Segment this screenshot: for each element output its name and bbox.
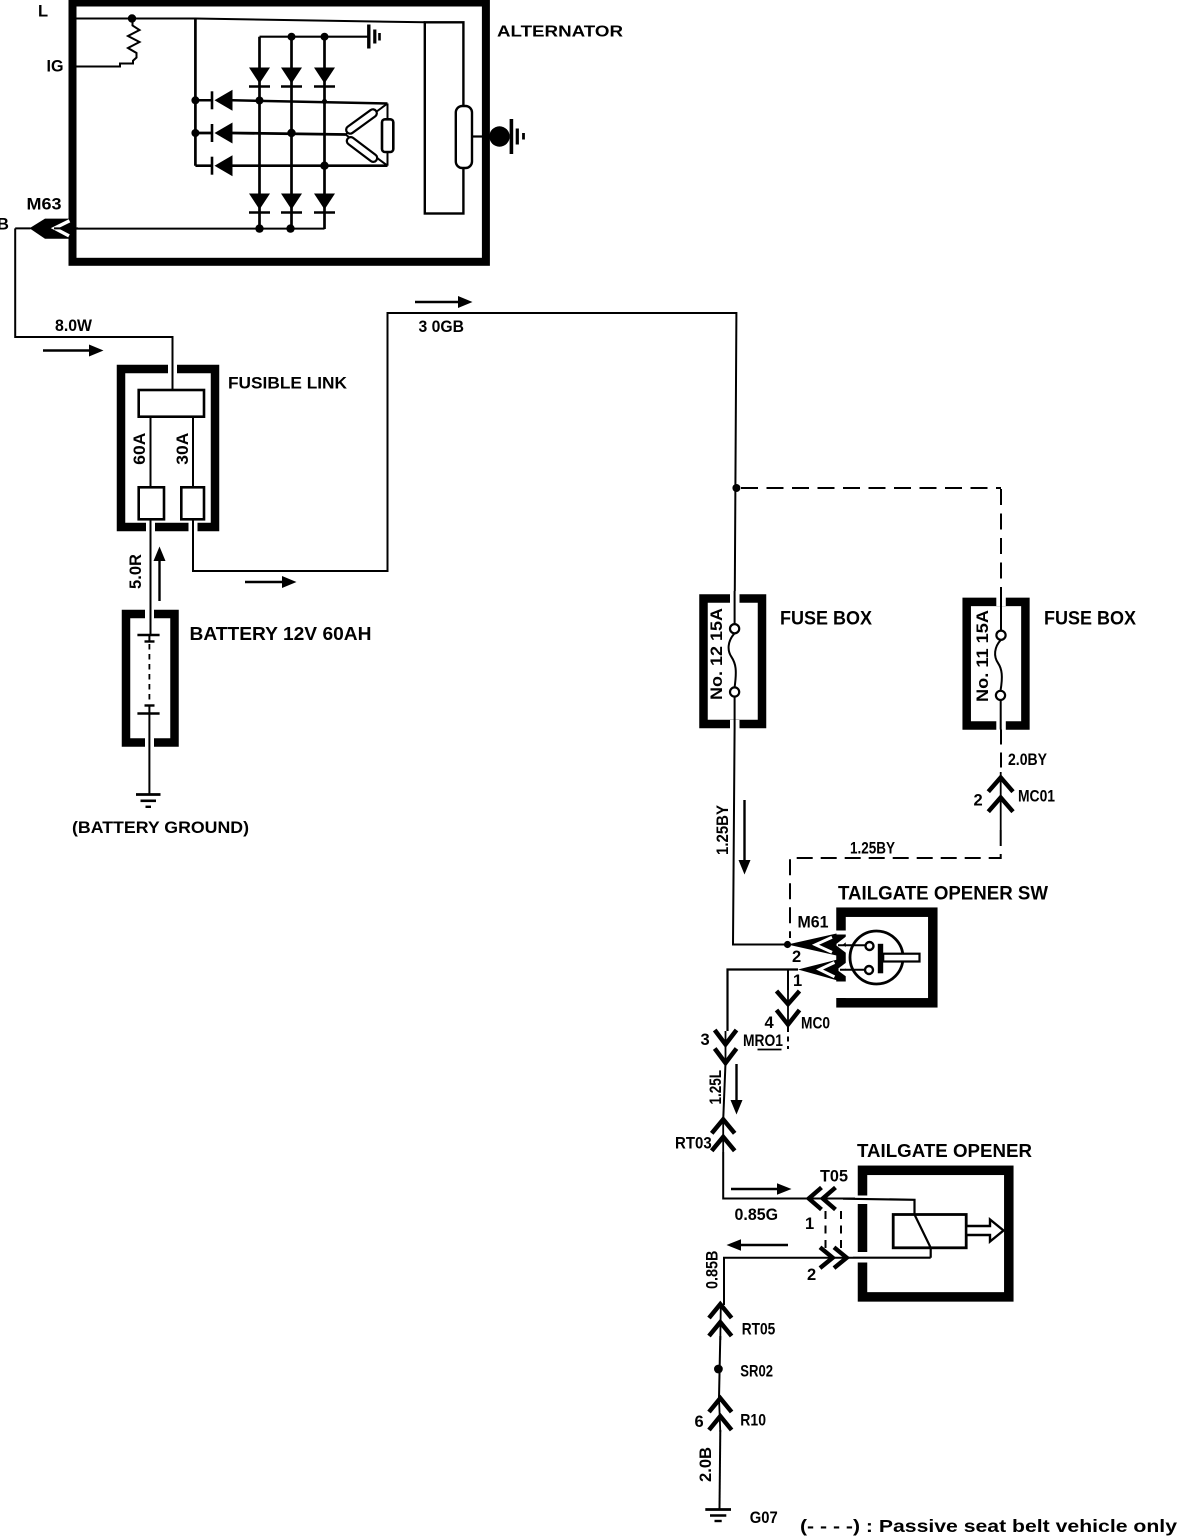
svg-text:(BATTERY GROUND): (BATTERY GROUND) (72, 818, 249, 837)
svg-text:MC0: MC0 (801, 1015, 830, 1033)
svg-text:L: L (38, 3, 48, 21)
svg-text:FUSE BOX: FUSE BOX (780, 609, 872, 630)
svg-text:0.85G: 0.85G (735, 1206, 779, 1224)
svg-text:1: 1 (793, 972, 802, 990)
svg-text:6: 6 (695, 1413, 704, 1431)
svg-text:No. 11 15A: No. 11 15A (974, 610, 992, 702)
svg-text:B: B (0, 216, 9, 234)
svg-text:R10: R10 (740, 1412, 766, 1430)
svg-text:2.0BY: 2.0BY (1008, 751, 1047, 769)
svg-text:G07: G07 (750, 1509, 778, 1527)
svg-text:T05: T05 (820, 1168, 848, 1186)
svg-text:30A: 30A (174, 433, 192, 465)
svg-text:BATTERY 12V 60AH: BATTERY 12V 60AH (190, 624, 372, 644)
svg-text:(- - - -) : Passive seat belt: (- - - -) : Passive seat belt vehicle on… (800, 1516, 1177, 1536)
svg-text:SR02: SR02 (740, 1363, 773, 1381)
svg-text:MC01: MC01 (1018, 788, 1055, 806)
svg-text:IG: IG (47, 58, 64, 76)
svg-text:1: 1 (805, 1215, 814, 1233)
svg-text:2: 2 (792, 948, 801, 966)
svg-text:FUSIBLE LINK: FUSIBLE LINK (228, 375, 347, 393)
svg-text:4: 4 (765, 1014, 775, 1032)
svg-text:0.85B: 0.85B (703, 1250, 721, 1289)
svg-text:60A: 60A (131, 433, 149, 465)
svg-text:RT05: RT05 (742, 1321, 776, 1339)
svg-text:8.0W: 8.0W (55, 317, 92, 335)
svg-text:No. 12 15A: No. 12 15A (708, 608, 726, 700)
svg-text:ALTERNATOR: ALTERNATOR (497, 24, 623, 41)
svg-text:RT03: RT03 (675, 1134, 712, 1152)
svg-text:2: 2 (807, 1266, 816, 1284)
svg-text:3: 3 (701, 1031, 710, 1049)
svg-text:1.25BY: 1.25BY (850, 840, 895, 858)
svg-text:1.25L: 1.25L (707, 1070, 725, 1105)
svg-text:TAILGATE OPENER: TAILGATE OPENER (857, 1140, 1032, 1161)
svg-text:MRO1: MRO1 (743, 1032, 783, 1050)
svg-text:TAILGATE OPENER SW: TAILGATE OPENER SW (838, 884, 1048, 905)
svg-text:FUSE BOX: FUSE BOX (1044, 609, 1136, 630)
svg-text:3 0GB: 3 0GB (419, 318, 465, 336)
svg-text:2: 2 (974, 792, 983, 810)
svg-text:2.0B: 2.0B (697, 1447, 715, 1482)
svg-text:5.0R: 5.0R (127, 554, 145, 589)
svg-text:1.25BY: 1.25BY (714, 805, 732, 855)
svg-text:M61: M61 (798, 914, 829, 932)
svg-text:M63: M63 (27, 196, 62, 214)
